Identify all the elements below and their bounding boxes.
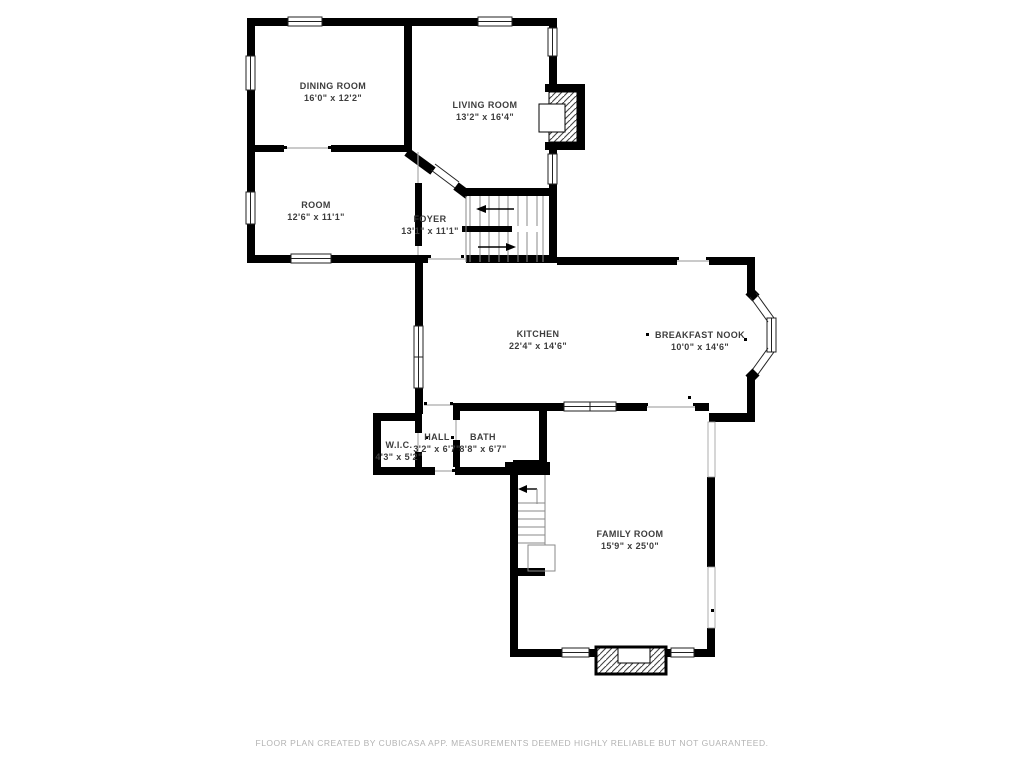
room-name: KITCHEN bbox=[509, 328, 567, 340]
room-label-foyer: FOYER 13'1" x 11'1" bbox=[401, 213, 459, 237]
room-name: DINING ROOM bbox=[300, 80, 366, 92]
fireplace-living-room bbox=[539, 84, 585, 150]
room-name: ROOM bbox=[287, 199, 345, 211]
room-label-breakfast-nook: BREAKFAST NOOK 10'0" x 14'6" bbox=[655, 329, 745, 353]
room-name: HALL bbox=[413, 431, 460, 443]
fireplace-family-room bbox=[596, 647, 666, 674]
room-label-bath: BATH 8'8" x 6'7" bbox=[459, 431, 506, 455]
room-name: BATH bbox=[459, 431, 506, 443]
room-name: FAMILY ROOM bbox=[597, 528, 664, 540]
room-dimensions: 10'0" x 14'6" bbox=[655, 341, 745, 353]
room-dimensions: 15'9" x 25'0" bbox=[597, 540, 664, 552]
stairs-family-arrow bbox=[518, 485, 537, 504]
room-dimensions: 16'0" x 12'2" bbox=[300, 92, 366, 104]
footer-disclaimer: FLOOR PLAN CREATED BY CUBICASA APP. MEAS… bbox=[256, 738, 769, 748]
room-name: LIVING ROOM bbox=[453, 99, 518, 111]
room-label-hall: HALL 3'2" x 6'7" bbox=[413, 431, 460, 455]
room-label-kitchen: KITCHEN 22'4" x 14'6" bbox=[509, 328, 567, 352]
openings-group bbox=[284, 148, 709, 471]
room-name: FOYER bbox=[401, 213, 459, 225]
room-label-living-room: LIVING ROOM 13'2" x 16'4" bbox=[453, 99, 518, 123]
room-dimensions: 3'2" x 6'7" bbox=[413, 443, 460, 455]
room-name: BREAKFAST NOOK bbox=[655, 329, 745, 341]
room-dimensions: 22'4" x 14'6" bbox=[509, 340, 567, 352]
room-dimensions: 8'8" x 6'7" bbox=[459, 443, 506, 455]
room-dimensions: 12'6" x 11'1" bbox=[287, 211, 345, 223]
room-label-room: ROOM 12'6" x 11'1" bbox=[287, 199, 345, 223]
floor-plan-page: DINING ROOM 16'0" x 12'2" LIVING ROOM 13… bbox=[0, 0, 1024, 768]
room-dimensions: 13'2" x 16'4" bbox=[453, 111, 518, 123]
room-label-family-room: FAMILY ROOM 15'9" x 25'0" bbox=[597, 528, 664, 552]
room-label-dining-room: DINING ROOM 16'0" x 12'2" bbox=[300, 80, 366, 104]
room-dimensions: 13'1" x 11'1" bbox=[401, 225, 459, 237]
